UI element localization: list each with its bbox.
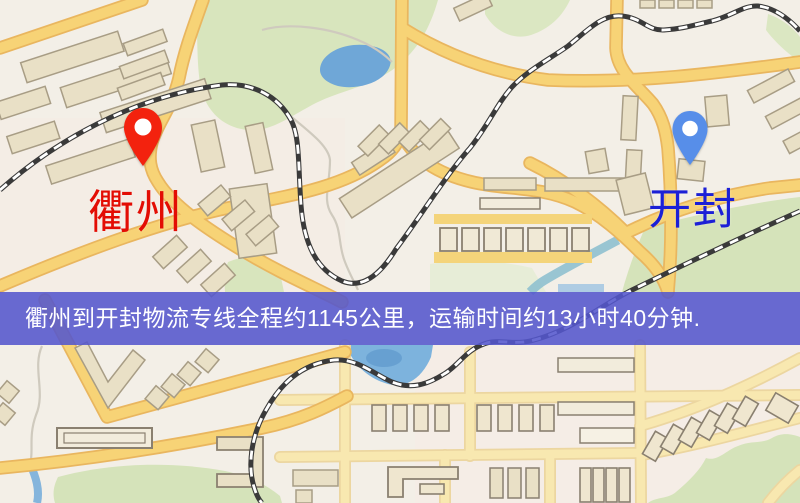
origin-pin-icon[interactable] bbox=[120, 106, 166, 168]
destination-label: 开封 bbox=[641, 175, 745, 237]
route-info-banner: 衢州到开封物流专线全程约1145公里，运输时间约13小时40分钟. bbox=[0, 292, 800, 345]
map-container[interactable]: 衢州 开封 衢州到开封物流专线全程约1145公里，运输时间约13小时40分钟. bbox=[0, 0, 800, 503]
origin-label: 衢州 bbox=[78, 176, 194, 242]
map-canvas bbox=[0, 0, 800, 503]
destination-pin-icon[interactable] bbox=[669, 109, 711, 167]
